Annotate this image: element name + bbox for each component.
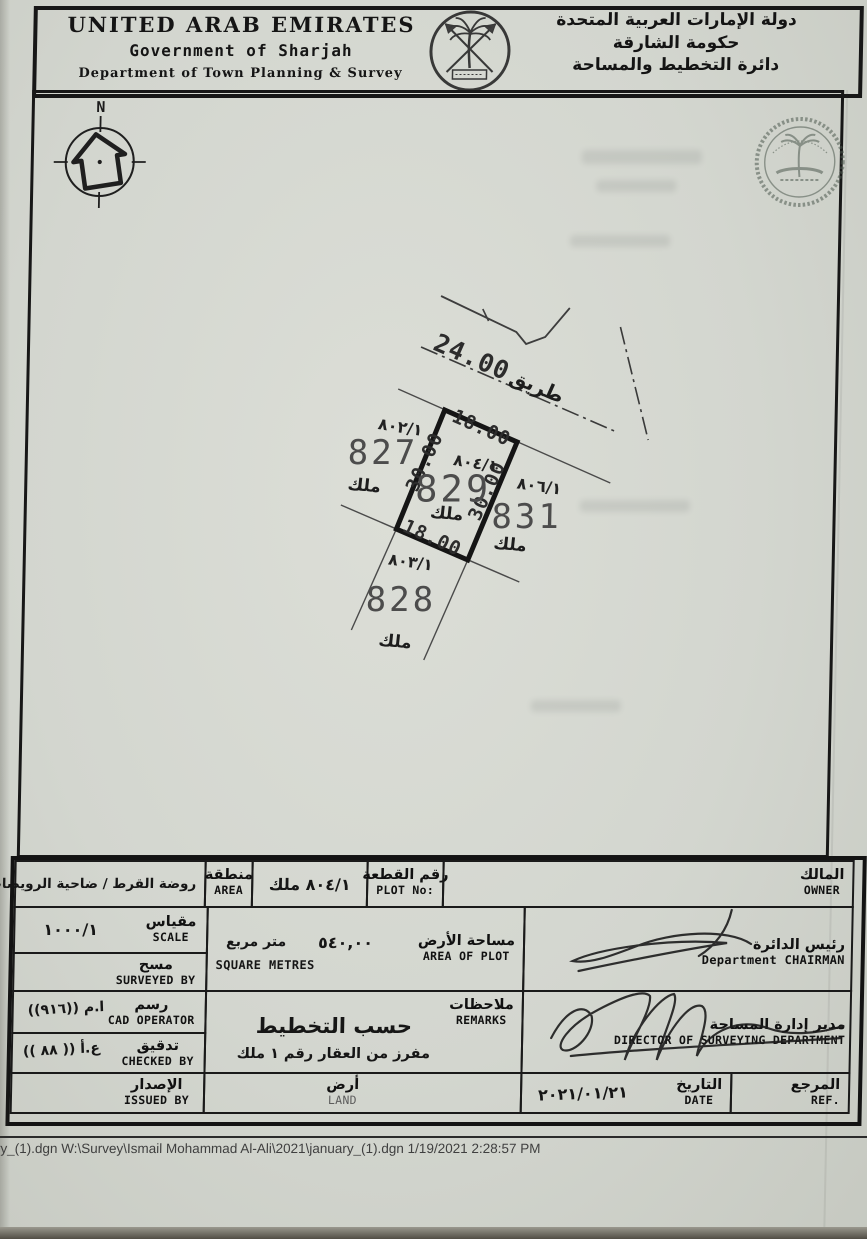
remarks-line1: حسب التخطيط — [206, 1014, 461, 1038]
cad-operator-cell: رسم CAD OPERATOR ا.م ((٩١٦)) — [11, 990, 207, 1034]
scale-label-ar: مقياس — [146, 915, 197, 931]
cad-label-ar: رسم — [134, 998, 168, 1014]
owner-label-en: OWNER — [804, 884, 840, 897]
checked-label-en: CHECKED BY — [121, 1055, 194, 1068]
scale-value: ١٠٠٠/١ — [43, 920, 98, 939]
plot-number-831: 831 — [491, 497, 562, 537]
checked-value: ع.أ (( ٨٨ )) — [23, 1040, 100, 1060]
remarks-cell: ملاحظات REMARKS حسب التخطيط مفرز من العق… — [203, 990, 524, 1074]
ref-label-ar: المرجع — [791, 1078, 841, 1094]
area-plot-unit-en: SQUARE METRES — [215, 958, 314, 972]
issued-label-en: ISSUED BY — [124, 1094, 189, 1107]
title-block-table: روضة القرط / ضاحية الرويضات منطقة AREA ٨… — [5, 856, 866, 1126]
remarks-label-en: REMARKS — [456, 1014, 507, 1027]
date-value: ٢٠٢١/٠١/٢١ — [538, 1082, 628, 1104]
scan-left-edge — [0, 0, 10, 1239]
area-label-ar: منطقة — [205, 868, 254, 884]
plot-no-label-en: PLOT No: — [376, 884, 434, 897]
checked-label-ar: تدقيق — [137, 1039, 180, 1055]
remarks-label-ar: ملاحظات — [449, 998, 514, 1014]
tenure-827: ملك — [347, 475, 382, 498]
cad-label-en: CAD OPERATOR — [108, 1014, 195, 1027]
surveyed-label-en: SURVEYED BY — [116, 974, 196, 987]
checked-by-cell: تدقيق CHECKED BY ع.أ (( ٨٨ )) — [10, 1032, 206, 1074]
surveyed-label-ar: مسح — [139, 958, 174, 974]
land-label-ar: أرض — [326, 1078, 359, 1094]
issued-by-cell: الإصدار ISSUED BY — [10, 1072, 206, 1114]
surveyed-by-cell: مسح SURVEYED BY — [12, 952, 208, 992]
plot-no-label-ar: رقم القطعة — [362, 868, 449, 884]
director-cell: مدير إدارة المساحة DIRECTOR OF SURVEYING… — [520, 990, 852, 1074]
area-value: روضة القرط / ضاحية الرويضات — [0, 876, 196, 892]
director-signature — [530, 986, 852, 1082]
remarks-line2: مفرز من العقار رقم ١ ملك — [206, 1046, 461, 1062]
area-plot-unit-ar: متر مربع — [226, 934, 286, 950]
scanned-survey-plan: UNITED ARAB EMIRATES Government of Sharj… — [0, 0, 867, 1239]
area-plot-label-ar: مساحة الأرض — [418, 934, 515, 950]
area-value-cell: روضة القرط / ضاحية الرويضات — [14, 860, 207, 908]
plot-no-label-cell: رقم القطعة PLOT No: — [366, 860, 445, 908]
date-label-en: DATE — [684, 1094, 713, 1107]
owner-label-ar: المالك — [800, 868, 845, 884]
area-of-plot-cell: مساحة الأرض AREA OF PLOT متر مربع ٥٤٠,٠٠… — [205, 906, 526, 992]
scale-label-en: SCALE — [153, 931, 189, 944]
scale-cell: مقياس SCALE ١٠٠٠/١ — [13, 906, 209, 954]
plot-number-828: 828 — [365, 580, 436, 620]
plot-no-value: ٨٠٤/١ ملك — [253, 875, 366, 894]
area-plot-label-en: AREA OF PLOT — [423, 950, 510, 963]
paper-sheet: UNITED ARAB EMIRATES Government of Sharj… — [0, 0, 867, 1239]
plot-no-value-cell: ٨٠٤/١ ملك — [251, 860, 369, 908]
area-plot-value: ٥٤٠,٠٠ — [318, 933, 373, 952]
footer-rule — [0, 1136, 867, 1138]
tenure-829: ملك — [429, 503, 464, 526]
ref-cell: المرجع REF. — [730, 1072, 851, 1114]
issued-label-ar: الإصدار — [131, 1078, 183, 1094]
area-label-cell: منطقة AREA — [204, 860, 254, 908]
plot-number-827: 827 — [347, 433, 418, 473]
land-label-en: LAND — [328, 1094, 357, 1107]
date-cell: التاريخ DATE ٢٠٢١/٠١/٢١ — [520, 1072, 733, 1114]
land-cell: أرض LAND — [203, 1072, 523, 1114]
date-label-ar: التاريخ — [676, 1078, 722, 1094]
plot-file-path: uary_(1).dgn W:\Survey\Ismail Mohammad A… — [0, 1141, 541, 1156]
scan-bottom-edge — [0, 1227, 867, 1239]
tenure-831: ملك — [492, 534, 527, 557]
cad-value: ا.م ((٩١٦)) — [27, 999, 104, 1019]
chairman-cell: رئيس الدائرة Department CHAIRMAN — [522, 906, 854, 992]
tenure-828: ملك — [377, 631, 412, 654]
chairman-signature — [554, 892, 786, 992]
area-label-en: AREA — [214, 884, 243, 897]
